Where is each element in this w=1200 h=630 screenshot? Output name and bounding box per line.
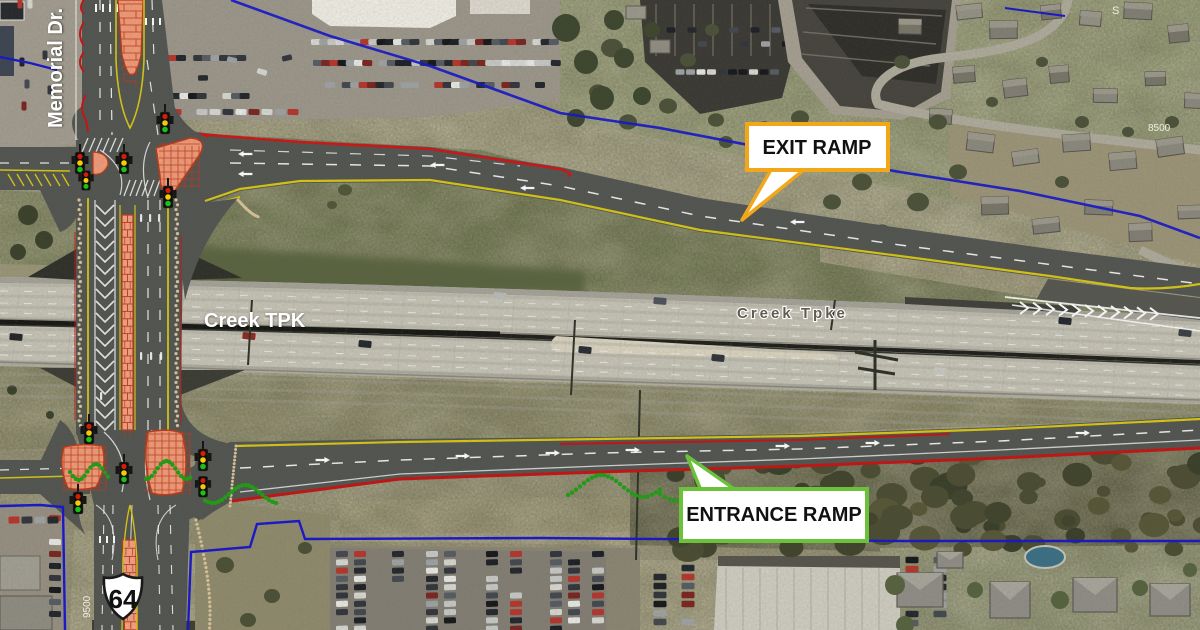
- svg-text:8500: 8500: [1148, 123, 1171, 134]
- svg-text:Memorial Dr.: Memorial Dr.: [45, 8, 67, 128]
- svg-text:Creek TPK: Creek TPK: [204, 310, 306, 332]
- svg-text:ENTRANCE RAMP: ENTRANCE RAMP: [686, 504, 862, 526]
- svg-text:64: 64: [109, 584, 138, 614]
- svg-text:S: S: [1112, 5, 1119, 17]
- svg-text:EXIT RAMP: EXIT RAMP: [763, 137, 872, 159]
- svg-text:Creek Tpke: Creek Tpke: [737, 305, 848, 322]
- svg-text:9500: 9500: [82, 595, 93, 618]
